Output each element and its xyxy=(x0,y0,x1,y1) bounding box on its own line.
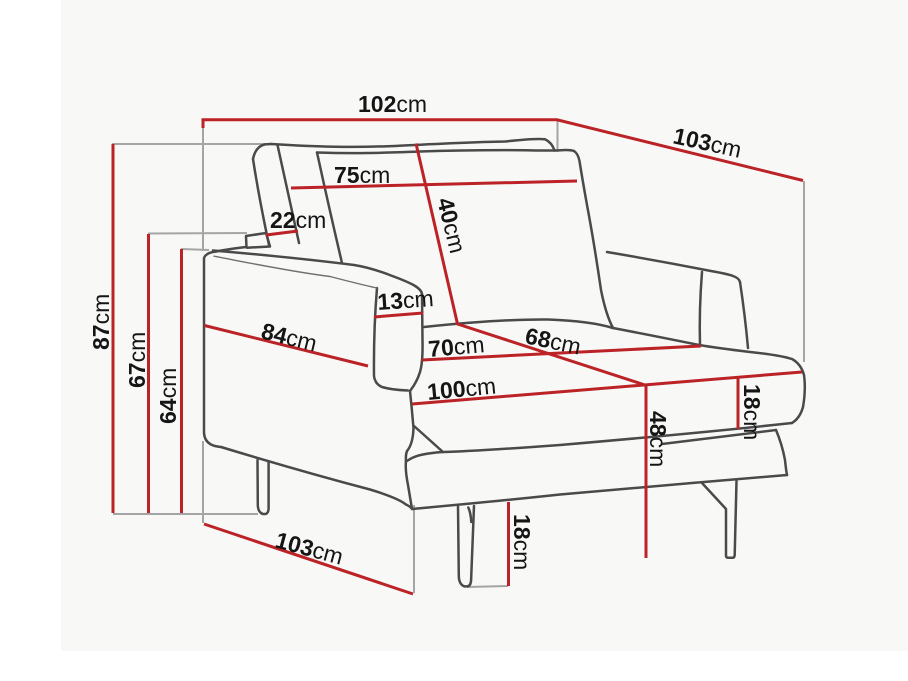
svg-text:67cm: 67cm xyxy=(124,332,150,388)
svg-text:18cm: 18cm xyxy=(739,384,765,440)
svg-text:18cm: 18cm xyxy=(509,514,535,570)
svg-text:22cm: 22cm xyxy=(270,207,326,233)
svg-text:70cm: 70cm xyxy=(427,331,485,362)
svg-text:64cm: 64cm xyxy=(155,368,181,424)
svg-text:75cm: 75cm xyxy=(334,162,390,188)
svg-text:13cm: 13cm xyxy=(377,285,435,315)
svg-text:87cm: 87cm xyxy=(88,294,114,350)
svg-text:102cm: 102cm xyxy=(358,91,427,117)
svg-text:48cm: 48cm xyxy=(645,411,671,467)
